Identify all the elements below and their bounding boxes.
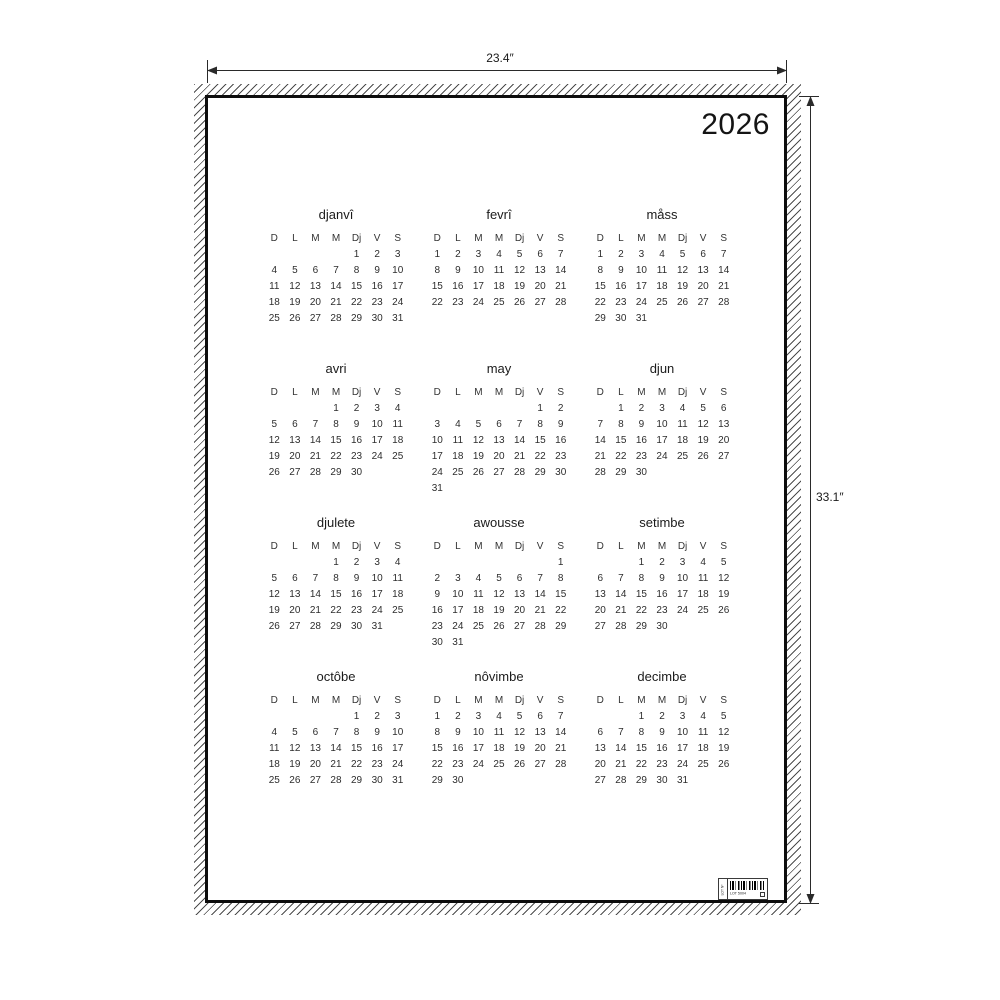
- date-cell: 27: [285, 619, 306, 635]
- dow-header: L: [611, 231, 632, 247]
- date-cell: 6: [590, 725, 611, 741]
- date-cell: 31: [387, 773, 408, 789]
- dow-header: Dj: [672, 693, 693, 709]
- date-cell: 31: [631, 311, 652, 327]
- width-dimension-label: 23.4″: [458, 51, 542, 65]
- date-cell: 10: [387, 725, 408, 741]
- date-cell: 14: [611, 741, 632, 757]
- date-cell: 10: [652, 417, 673, 433]
- month-title: avri: [264, 359, 408, 379]
- date-cell: 12: [693, 417, 714, 433]
- date-cell: 20: [305, 757, 326, 773]
- date-cell: 9: [448, 263, 469, 279]
- date-cell: 8: [631, 725, 652, 741]
- date-cell: 8: [326, 571, 347, 587]
- date-cell: 15: [631, 587, 652, 603]
- date-cell: 22: [611, 449, 632, 465]
- date-cell: 12: [713, 571, 734, 587]
- date-cell: 17: [631, 279, 652, 295]
- dow-header: Dj: [509, 385, 530, 401]
- date-cell: 6: [305, 725, 326, 741]
- dow-header: V: [693, 385, 714, 401]
- date-cell: 18: [387, 587, 408, 603]
- dow-header: D: [590, 231, 611, 247]
- date-cell: 28: [611, 773, 632, 789]
- empty-cell: [448, 555, 469, 571]
- date-cell: 2: [448, 247, 469, 263]
- date-cell: 10: [387, 263, 408, 279]
- date-cell: 25: [652, 295, 673, 311]
- date-cell: 15: [530, 433, 551, 449]
- empty-cell: [530, 555, 551, 571]
- date-cell: 16: [631, 433, 652, 449]
- date-cell: 22: [530, 449, 551, 465]
- empty-cell: [611, 555, 632, 571]
- date-cell: 8: [427, 263, 448, 279]
- date-cell: 29: [590, 311, 611, 327]
- empty-cell: [305, 401, 326, 417]
- barcode-side-text: LOT Nº: [719, 879, 728, 899]
- month-days: DLMMDjVS12345678910111213141516171819202…: [427, 385, 571, 497]
- date-cell: 13: [590, 741, 611, 757]
- date-cell: 22: [590, 295, 611, 311]
- date-cell: 3: [367, 401, 388, 417]
- date-cell: 21: [611, 603, 632, 619]
- date-cell: 9: [367, 725, 388, 741]
- date-cell: 21: [326, 295, 347, 311]
- empty-cell: [285, 709, 306, 725]
- date-cell: 4: [652, 247, 673, 263]
- dow-header: M: [489, 693, 510, 709]
- date-cell: 26: [468, 465, 489, 481]
- date-cell: 13: [590, 587, 611, 603]
- date-cell: 24: [427, 465, 448, 481]
- empty-cell: [427, 401, 448, 417]
- empty-cell: [285, 247, 306, 263]
- dow-header: M: [468, 693, 489, 709]
- dow-header: D: [590, 539, 611, 555]
- date-cell: 21: [550, 279, 571, 295]
- date-cell: 23: [346, 449, 367, 465]
- date-cell: 17: [367, 587, 388, 603]
- date-cell: 22: [427, 295, 448, 311]
- date-cell: 28: [305, 619, 326, 635]
- date-cell: 20: [285, 449, 306, 465]
- empty-cell: [590, 709, 611, 725]
- dow-header: Dj: [672, 539, 693, 555]
- month-days: DLMMDjVS12345678910111213141516171819202…: [590, 385, 734, 481]
- date-cell: 27: [489, 465, 510, 481]
- date-cell: 7: [305, 417, 326, 433]
- date-cell: 9: [550, 417, 571, 433]
- date-cell: 1: [631, 555, 652, 571]
- date-cell: 31: [367, 619, 388, 635]
- empty-cell: [509, 401, 530, 417]
- date-cell: 4: [489, 709, 510, 725]
- dow-header: L: [285, 385, 306, 401]
- date-cell: 18: [693, 741, 714, 757]
- date-cell: 19: [509, 741, 530, 757]
- arrow-down-icon: [807, 894, 815, 904]
- date-cell: 4: [693, 709, 714, 725]
- date-cell: 8: [631, 571, 652, 587]
- date-cell: 17: [672, 587, 693, 603]
- date-cell: 28: [713, 295, 734, 311]
- date-cell: 22: [346, 757, 367, 773]
- date-cell: 2: [611, 247, 632, 263]
- date-cell: 17: [448, 603, 469, 619]
- date-cell: 8: [346, 725, 367, 741]
- date-cell: 13: [713, 417, 734, 433]
- date-cell: 18: [693, 587, 714, 603]
- dow-header: V: [693, 539, 714, 555]
- month-days: DLMMDjVS12345678910111213141516171819202…: [427, 231, 571, 311]
- month-block: djunDLMMDjVS1234567891011121314151617181…: [590, 359, 734, 513]
- date-cell: 19: [713, 741, 734, 757]
- date-cell: 24: [631, 295, 652, 311]
- date-cell: 26: [713, 603, 734, 619]
- date-cell: 10: [367, 571, 388, 587]
- date-cell: 25: [693, 603, 714, 619]
- date-cell: 29: [631, 619, 652, 635]
- date-cell: 26: [489, 619, 510, 635]
- date-cell: 18: [387, 433, 408, 449]
- dow-header: D: [264, 385, 285, 401]
- date-cell: 1: [611, 401, 632, 417]
- date-cell: 25: [693, 757, 714, 773]
- date-cell: 23: [448, 295, 469, 311]
- dow-header: D: [427, 385, 448, 401]
- date-cell: 30: [367, 311, 388, 327]
- date-cell: 16: [611, 279, 632, 295]
- date-cell: 5: [468, 417, 489, 433]
- date-cell: 20: [305, 295, 326, 311]
- date-cell: 30: [346, 465, 367, 481]
- date-cell: 11: [387, 417, 408, 433]
- date-cell: 25: [468, 619, 489, 635]
- date-cell: 16: [346, 433, 367, 449]
- date-cell: 28: [530, 619, 551, 635]
- dow-header: V: [530, 385, 551, 401]
- poster: 2026 djanvîDLMMDjVS123456789101112131415…: [205, 95, 787, 903]
- date-cell: 8: [346, 263, 367, 279]
- date-cell: 7: [509, 417, 530, 433]
- date-cell: 25: [672, 449, 693, 465]
- date-cell: 6: [530, 247, 551, 263]
- month-days: DLMMDjVS12345678910111213141516171819202…: [590, 539, 734, 635]
- month-title: decimbe: [590, 667, 734, 687]
- date-cell: 30: [346, 619, 367, 635]
- date-cell: 25: [448, 465, 469, 481]
- date-cell: 4: [448, 417, 469, 433]
- date-cell: 3: [387, 247, 408, 263]
- date-cell: 1: [427, 709, 448, 725]
- date-cell: 25: [387, 603, 408, 619]
- date-cell: 7: [590, 417, 611, 433]
- date-cell: 31: [427, 481, 448, 497]
- date-cell: 29: [550, 619, 571, 635]
- dow-header: D: [427, 231, 448, 247]
- date-cell: 7: [530, 571, 551, 587]
- month-title: may: [427, 359, 571, 379]
- dow-header: M: [489, 385, 510, 401]
- date-cell: 25: [489, 757, 510, 773]
- date-cell: 25: [264, 311, 285, 327]
- date-cell: 23: [448, 757, 469, 773]
- dow-header: Dj: [509, 231, 530, 247]
- date-cell: 3: [672, 709, 693, 725]
- month-days: DLMMDjVS12345678910111213141516171819202…: [427, 539, 571, 651]
- empty-cell: [489, 555, 510, 571]
- date-cell: 19: [285, 295, 306, 311]
- date-cell: 28: [550, 757, 571, 773]
- empty-cell: [264, 401, 285, 417]
- date-cell: 30: [631, 465, 652, 481]
- date-cell: 17: [672, 741, 693, 757]
- date-cell: 26: [509, 757, 530, 773]
- date-cell: 15: [346, 279, 367, 295]
- date-cell: 7: [611, 571, 632, 587]
- date-cell: 20: [713, 433, 734, 449]
- date-cell: 18: [448, 449, 469, 465]
- date-cell: 4: [489, 247, 510, 263]
- date-cell: 5: [264, 571, 285, 587]
- empty-cell: [285, 401, 306, 417]
- date-cell: 13: [285, 587, 306, 603]
- dow-header: S: [550, 693, 571, 709]
- dow-header: L: [448, 539, 469, 555]
- empty-cell: [305, 709, 326, 725]
- date-cell: 22: [631, 603, 652, 619]
- dow-header: S: [713, 693, 734, 709]
- date-cell: 15: [326, 587, 347, 603]
- date-cell: 5: [713, 709, 734, 725]
- date-cell: 2: [367, 709, 388, 725]
- dow-header: S: [713, 539, 734, 555]
- date-cell: 15: [631, 741, 652, 757]
- dow-header: L: [611, 693, 632, 709]
- date-cell: 20: [590, 757, 611, 773]
- date-cell: 16: [367, 279, 388, 295]
- dow-header: M: [652, 693, 673, 709]
- date-cell: 5: [672, 247, 693, 263]
- month-block: måssDLMMDjVS1234567891011121314151617181…: [590, 205, 734, 359]
- date-cell: 5: [713, 555, 734, 571]
- date-cell: 9: [346, 417, 367, 433]
- date-cell: 7: [326, 725, 347, 741]
- date-cell: 12: [264, 433, 285, 449]
- date-cell: 24: [468, 757, 489, 773]
- date-cell: 13: [489, 433, 510, 449]
- date-cell: 18: [489, 741, 510, 757]
- date-cell: 17: [652, 433, 673, 449]
- dow-header: V: [367, 231, 388, 247]
- date-cell: 14: [550, 263, 571, 279]
- year-title: 2026: [701, 110, 770, 140]
- date-cell: 26: [509, 295, 530, 311]
- date-cell: 14: [509, 433, 530, 449]
- empty-cell: [326, 247, 347, 263]
- dow-header: M: [652, 539, 673, 555]
- date-cell: 13: [530, 725, 551, 741]
- date-cell: 11: [264, 279, 285, 295]
- dow-header: D: [590, 693, 611, 709]
- date-cell: 1: [326, 401, 347, 417]
- dow-header: V: [367, 693, 388, 709]
- date-cell: 30: [652, 773, 673, 789]
- month-title: setimbe: [590, 513, 734, 533]
- date-cell: 13: [530, 263, 551, 279]
- month-days: DLMMDjVS12345678910111213141516171819202…: [264, 693, 408, 789]
- date-cell: 27: [305, 773, 326, 789]
- date-cell: 3: [652, 401, 673, 417]
- date-cell: 23: [367, 295, 388, 311]
- date-cell: 7: [305, 571, 326, 587]
- date-cell: 29: [346, 311, 367, 327]
- date-cell: 20: [489, 449, 510, 465]
- date-cell: 30: [652, 619, 673, 635]
- date-cell: 3: [468, 709, 489, 725]
- empty-cell: [590, 555, 611, 571]
- dow-header: M: [489, 231, 510, 247]
- month-title: djanvî: [264, 205, 408, 225]
- empty-cell: [264, 709, 285, 725]
- barcode-code-text: LOT 5004: [730, 892, 746, 896]
- date-cell: 23: [652, 757, 673, 773]
- date-cell: 25: [489, 295, 510, 311]
- date-cell: 5: [509, 709, 530, 725]
- date-cell: 19: [468, 449, 489, 465]
- date-cell: 14: [590, 433, 611, 449]
- height-dimension-label: 33.1″: [816, 490, 844, 504]
- date-cell: 23: [652, 603, 673, 619]
- date-cell: 6: [305, 263, 326, 279]
- arrow-left-icon: [207, 67, 217, 75]
- date-cell: 12: [285, 279, 306, 295]
- date-cell: 17: [468, 279, 489, 295]
- date-cell: 20: [590, 603, 611, 619]
- date-cell: 26: [672, 295, 693, 311]
- date-cell: 3: [367, 555, 388, 571]
- date-cell: 22: [631, 757, 652, 773]
- date-cell: 23: [367, 757, 388, 773]
- date-cell: 28: [305, 465, 326, 481]
- date-cell: 7: [550, 709, 571, 725]
- date-cell: 27: [713, 449, 734, 465]
- date-cell: 14: [326, 279, 347, 295]
- dow-header: L: [285, 231, 306, 247]
- date-cell: 6: [713, 401, 734, 417]
- date-cell: 30: [427, 635, 448, 651]
- date-cell: 9: [631, 417, 652, 433]
- date-cell: 21: [326, 757, 347, 773]
- date-cell: 24: [672, 757, 693, 773]
- month-days: DLMMDjVS12345678910111213141516171819202…: [590, 693, 734, 789]
- dow-header: L: [611, 385, 632, 401]
- date-cell: 16: [550, 433, 571, 449]
- empty-cell: [448, 401, 469, 417]
- date-cell: 1: [631, 709, 652, 725]
- dow-header: V: [693, 231, 714, 247]
- date-cell: 23: [550, 449, 571, 465]
- date-cell: 26: [285, 773, 306, 789]
- date-cell: 25: [387, 449, 408, 465]
- date-cell: 23: [427, 619, 448, 635]
- month-block: djuleteDLMMDjVS1234567891011121314151617…: [264, 513, 408, 667]
- date-cell: 8: [611, 417, 632, 433]
- date-cell: 27: [305, 311, 326, 327]
- date-cell: 28: [509, 465, 530, 481]
- dow-header: M: [652, 385, 673, 401]
- date-cell: 17: [387, 279, 408, 295]
- dow-header: Dj: [509, 539, 530, 555]
- dow-header: M: [326, 231, 347, 247]
- date-cell: 26: [264, 465, 285, 481]
- dow-header: Dj: [346, 385, 367, 401]
- date-cell: 21: [305, 449, 326, 465]
- barcode-icon: [730, 881, 765, 890]
- date-cell: 27: [285, 465, 306, 481]
- date-cell: 11: [387, 571, 408, 587]
- date-cell: 1: [550, 555, 571, 571]
- date-cell: 29: [326, 619, 347, 635]
- dow-header: V: [530, 693, 551, 709]
- date-cell: 13: [285, 433, 306, 449]
- date-cell: 4: [264, 725, 285, 741]
- date-cell: 19: [264, 603, 285, 619]
- arrow-right-icon: [777, 67, 787, 75]
- month-block: setimbeDLMMDjVS1234567891011121314151617…: [590, 513, 734, 667]
- date-cell: 29: [530, 465, 551, 481]
- dow-header: D: [590, 385, 611, 401]
- date-cell: 14: [550, 725, 571, 741]
- date-cell: 27: [509, 619, 530, 635]
- empty-cell: [305, 555, 326, 571]
- date-cell: 19: [489, 603, 510, 619]
- empty-cell: [489, 401, 510, 417]
- date-cell: 4: [264, 263, 285, 279]
- month-block: awousseDLMMDjVS1234567891011121314151617…: [427, 513, 571, 667]
- empty-cell: [468, 401, 489, 417]
- date-cell: 9: [346, 571, 367, 587]
- dow-header: M: [305, 231, 326, 247]
- date-cell: 18: [264, 295, 285, 311]
- date-cell: 1: [530, 401, 551, 417]
- date-cell: 24: [652, 449, 673, 465]
- date-cell: 22: [346, 295, 367, 311]
- date-cell: 13: [305, 279, 326, 295]
- date-cell: 21: [305, 603, 326, 619]
- date-cell: 1: [590, 247, 611, 263]
- date-cell: 19: [693, 433, 714, 449]
- date-cell: 15: [427, 279, 448, 295]
- month-days: DLMMDjVS12345678910111213141516171819202…: [264, 539, 408, 635]
- date-cell: 11: [693, 571, 714, 587]
- date-cell: 12: [468, 433, 489, 449]
- date-cell: 8: [326, 417, 347, 433]
- dow-header: D: [427, 693, 448, 709]
- date-cell: 2: [346, 555, 367, 571]
- date-cell: 9: [652, 571, 673, 587]
- date-cell: 10: [448, 587, 469, 603]
- date-cell: 14: [326, 741, 347, 757]
- date-cell: 23: [631, 449, 652, 465]
- empty-cell: [326, 709, 347, 725]
- date-cell: 6: [285, 571, 306, 587]
- date-cell: 15: [550, 587, 571, 603]
- date-cell: 10: [672, 725, 693, 741]
- date-cell: 12: [489, 587, 510, 603]
